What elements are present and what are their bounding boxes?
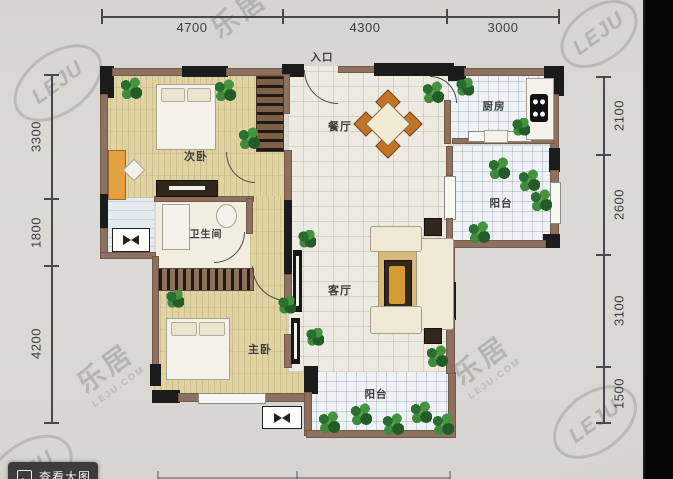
ac-unit: [262, 406, 302, 429]
dim-label-right-3: 3100: [612, 271, 627, 351]
leju-domain-text: LEJU.COM: [447, 342, 542, 415]
wall: [284, 200, 292, 276]
dim-tick: [282, 9, 284, 24]
floorplan-photo: 乐居 LEJU LEJU 乐居 LEJU.COM 乐居 LEJU.COM LEJ…: [0, 0, 643, 479]
image-icon: [17, 470, 32, 479]
room-floor-hallway: [250, 196, 288, 276]
leju-cn-text: 乐居: [48, 318, 160, 414]
window: [198, 393, 266, 404]
wall: [306, 430, 456, 438]
wall: [100, 252, 156, 259]
dresser-secondary: [156, 180, 218, 197]
dim-tick: [44, 265, 59, 267]
wall: [246, 198, 253, 234]
dim-tick: [101, 9, 103, 24]
wall: [150, 364, 161, 386]
dim-line-bottom: [158, 477, 450, 479]
room-label-bathroom: 卫生间: [190, 226, 223, 241]
coffee-table: [384, 260, 412, 312]
dim-tick: [558, 9, 560, 24]
stove: [530, 94, 548, 122]
tv-console: [291, 318, 300, 364]
room-floor-balcony-bottom: [306, 372, 452, 432]
tv-screen: [296, 256, 299, 306]
dim-label-right-4: 1500: [612, 354, 627, 434]
desk: [108, 150, 126, 200]
pillow: [161, 88, 185, 102]
wall: [100, 194, 108, 230]
screenshot-root: 乐居 LEJU LEJU 乐居 LEJU.COM 乐居 LEJU.COM LEJ…: [0, 0, 673, 479]
room-label-entrance: 入口: [311, 50, 334, 65]
ac-bowtie-left: [123, 235, 131, 245]
view-large-image-label: 查看大图: [39, 468, 91, 479]
leju-logo-text: LEJU: [569, 7, 630, 60]
leju-watermark-logo: LEJU: [539, 370, 650, 474]
wall: [100, 94, 108, 198]
ac-bowtie-right: [282, 413, 290, 423]
sofa-bottom: [370, 306, 422, 334]
dim-tick: [596, 154, 611, 156]
wall: [152, 390, 180, 403]
tv-screen: [294, 323, 297, 359]
tv-console: [293, 250, 302, 312]
dim-tick: [296, 471, 298, 479]
wardrobe-secondary-bedroom: [256, 76, 284, 152]
room-label-secondary-bedroom: 次卧: [184, 148, 208, 164]
dim-tick: [44, 422, 59, 424]
sofa-top: [370, 226, 422, 252]
dim-label-top-3: 3000: [463, 20, 543, 35]
wall: [284, 150, 292, 202]
dim-label-right-1: 2100: [612, 76, 627, 156]
dim-line-top: [102, 16, 560, 18]
dim-tick: [596, 422, 611, 424]
dim-tick: [44, 198, 59, 200]
wall: [452, 240, 546, 248]
room-floor-balcony-right: [452, 146, 552, 242]
wall: [446, 146, 453, 176]
dim-label-top-2: 4300: [325, 20, 405, 35]
dim-tick: [449, 471, 451, 479]
window: [550, 182, 561, 224]
wall: [444, 100, 451, 144]
pillow: [171, 322, 197, 336]
pillow: [199, 322, 225, 336]
wall: [448, 372, 456, 432]
ac-bowtie-left: [274, 413, 282, 423]
room-label-kitchen: 厨房: [483, 99, 506, 114]
view-large-image-button[interactable]: 查看大图: [8, 462, 98, 479]
kitchen-sink: [484, 130, 508, 143]
dim-label-left-2: 1800: [29, 193, 44, 273]
leju-watermark-text: 乐居 LEJU.COM: [48, 318, 166, 422]
dim-tick: [596, 366, 611, 368]
dim-label-left-3: 4200: [29, 304, 44, 384]
bathroom-vanity: [162, 204, 190, 250]
wall: [112, 68, 186, 76]
dim-tick: [596, 254, 611, 256]
side-table: [424, 328, 442, 344]
ac-bowtie-right: [131, 235, 139, 245]
room-label-living-room: 客厅: [328, 282, 352, 298]
dim-label-left-1: 3300: [29, 97, 44, 177]
wall: [464, 68, 546, 76]
pillow: [187, 88, 211, 102]
dim-tick: [596, 76, 611, 78]
dim-tick: [44, 74, 59, 76]
dim-label-top-1: 4700: [152, 20, 232, 35]
room-label-balcony-bottom: 阳台: [365, 387, 388, 402]
wall: [182, 66, 228, 77]
wall: [226, 68, 286, 76]
room-label-balcony-right: 阳台: [490, 196, 513, 211]
wall: [374, 63, 454, 76]
dim-line-right: [603, 76, 605, 424]
ac-unit: [112, 228, 150, 252]
dim-line-left: [51, 74, 53, 424]
wall: [338, 66, 376, 73]
bed-master: [166, 318, 230, 380]
window: [444, 176, 456, 220]
photo-right-black-band: [643, 0, 673, 479]
dresser-detail: [169, 186, 205, 190]
room-label-master-bedroom: 主卧: [248, 341, 272, 357]
dim-label-right-2: 2600: [612, 165, 627, 245]
dim-tick: [446, 9, 448, 24]
side-table: [424, 218, 442, 236]
room-label-dining: 餐厅: [328, 118, 352, 134]
coffee-table-top: [389, 266, 405, 304]
bed-secondary: [156, 84, 216, 150]
toilet: [216, 204, 237, 228]
closet-master-bedroom: [158, 268, 254, 291]
wall: [549, 148, 560, 172]
dim-tick: [157, 471, 159, 479]
wall: [304, 366, 318, 394]
